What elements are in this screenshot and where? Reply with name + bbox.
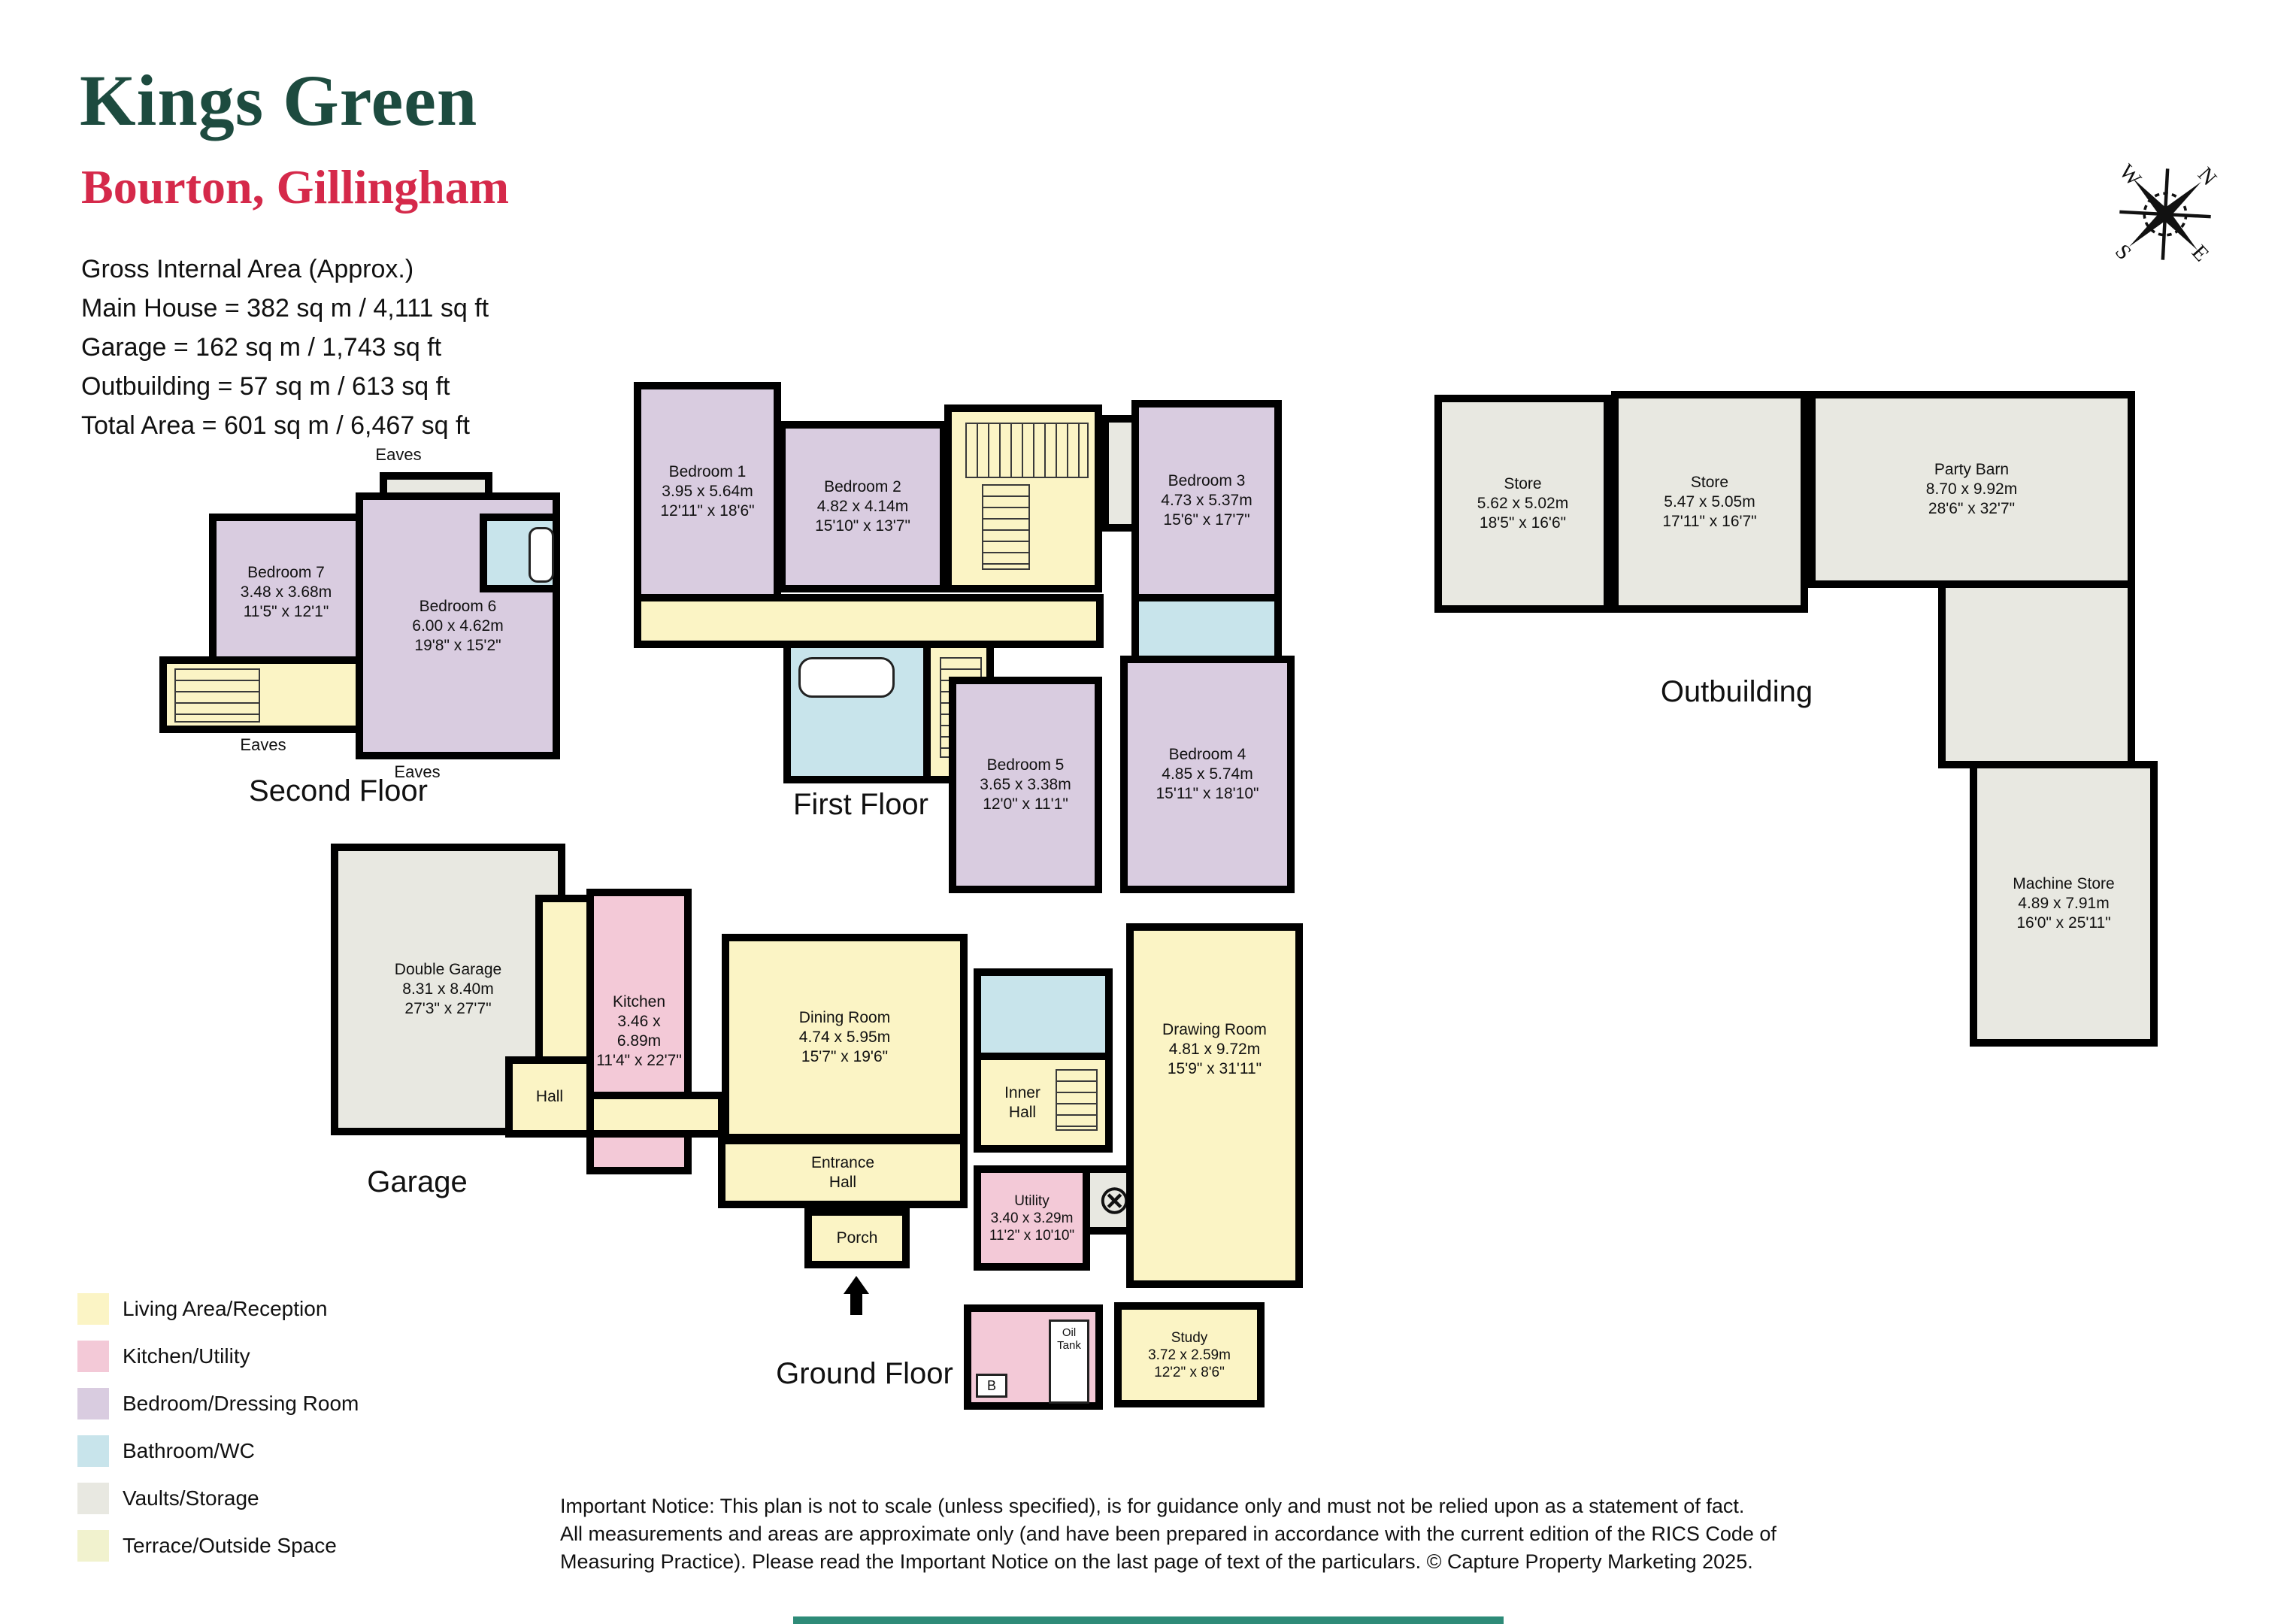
legend-swatch <box>77 1483 109 1514</box>
room-label: Inner Hall <box>995 1083 1050 1123</box>
garage-caption: Garage <box>342 1165 492 1199</box>
room-label: Bedroom 4 4.85 x 5.74m 15'11" x 18'10" <box>1156 745 1259 804</box>
bathtub-icon <box>529 527 554 583</box>
legend-label: Kitchen/Utility <box>123 1344 250 1368</box>
notice-line: All measurements and areas are approxima… <box>560 1520 1777 1548</box>
legend-item-bathroom: Bathroom/WC <box>77 1435 255 1467</box>
room-label: Dining Room 4.74 x 5.95m 15'7" x 19'6" <box>799 1008 890 1067</box>
second-floor-caption: Second Floor <box>248 774 429 808</box>
stairs <box>1056 1069 1098 1131</box>
legend-label: Terrace/Outside Space <box>123 1534 337 1558</box>
room-label: Store 5.62 x 5.02m 18'5" x 16'6" <box>1477 474 1568 533</box>
room-store-2: Store 5.47 x 5.05m 17'11" x 16'7" <box>1611 391 1808 613</box>
room-label: Utility 3.40 x 3.29m 11'2" x 10'10" <box>989 1192 1074 1244</box>
room-bedroom-5: Bedroom 5 3.65 x 3.38m 12'0" x 11'1" <box>949 677 1102 893</box>
page-subtitle: Bourton, Gillingham <box>81 159 509 215</box>
legend-label: Bedroom/Dressing Room <box>123 1392 359 1416</box>
floorplan-sheet: Kings Green Bourton, Gillingham Gross In… <box>0 0 2296 1624</box>
footer-brand-bar <box>793 1616 1504 1624</box>
room-label: Bedroom 2 4.82 x 4.14m 15'10" x 13'7" <box>815 477 910 536</box>
room-label: Hall <box>536 1087 563 1107</box>
ground-floor-caption: Ground Floor <box>759 1357 970 1391</box>
legend-swatch <box>77 1293 109 1325</box>
oil-tank-room: Oil Tank B <box>964 1304 1103 1410</box>
legend-swatch <box>77 1530 109 1562</box>
room-label: Kitchen 3.46 x 6.89m 11'4" x 22'7" <box>595 992 682 1071</box>
important-notice: Important Notice: This plan is not to sc… <box>560 1492 1777 1576</box>
second-floor-landing <box>159 656 363 733</box>
area-total: Total Area = 601 sq m / 6,467 sq ft <box>81 406 489 445</box>
room-utility: Utility 3.40 x 3.29m 11'2" x 10'10" <box>974 1165 1090 1271</box>
room-label: Double Garage 8.31 x 8.40m 27'3" x 27'7" <box>395 960 501 1019</box>
legend-item-bedroom: Bedroom/Dressing Room <box>77 1388 359 1419</box>
legend-item-living: Living Area/Reception <box>77 1293 327 1325</box>
room-label: Entrance Hall <box>801 1153 884 1192</box>
room-label: Bedroom 5 3.65 x 3.38m 12'0" x 11'1" <box>980 756 1071 814</box>
room-label: Bedroom 3 4.73 x 5.37m 15'6" x 17'7" <box>1161 471 1252 530</box>
room-wc-ground <box>974 968 1113 1060</box>
outbuilding-caption: Outbuilding <box>1631 675 1842 709</box>
boiler-marker: B <box>976 1374 1007 1398</box>
compass-n: N <box>2193 162 2222 190</box>
room-bathroom-first-left <box>783 641 931 783</box>
first-floor-stairwell <box>944 404 1102 592</box>
area-garage: Garage = 162 sq m / 1,743 sq ft <box>81 328 489 367</box>
room-label: Machine Store 4.89 x 7.91m 16'0" x 25'11… <box>2013 874 2114 933</box>
room-bathroom-second <box>480 514 560 592</box>
legend-label: Bathroom/WC <box>123 1439 255 1463</box>
stairs <box>965 423 1089 478</box>
legend-item-kitchen: Kitchen/Utility <box>77 1341 250 1372</box>
room-inner-hall: Inner Hall <box>974 1053 1113 1153</box>
room-label: Party Barn 8.70 x 9.92m 28'6" x 32'7" <box>1926 460 2017 519</box>
room-hall: Hall <box>505 1056 594 1138</box>
bathtub-icon <box>798 657 895 698</box>
room-porch: Porch <box>804 1208 910 1268</box>
room-bedroom-2: Bedroom 2 4.82 x 4.14m 15'10" x 13'7" <box>778 421 947 592</box>
area-outbuilding: Outbuilding = 57 sq m / 613 sq ft <box>81 367 489 406</box>
compass-rose-icon: N E S W <box>2101 150 2229 278</box>
room-store-1: Store 5.62 x 5.02m 18'5" x 16'6" <box>1434 395 1611 613</box>
legend-label: Living Area/Reception <box>123 1297 327 1321</box>
room-label: Bedroom 7 3.48 x 3.68m 11'5" x 12'1" <box>241 563 332 622</box>
legend-item-terrace: Terrace/Outside Space <box>77 1530 337 1562</box>
room-label: Bedroom 1 3.95 x 5.64m 12'11" x 18'6" <box>660 462 754 521</box>
first-floor-caption: First Floor <box>767 788 955 822</box>
room-bedroom-4: Bedroom 4 4.85 x 5.74m 15'11" x 18'10" <box>1120 656 1295 893</box>
legend-swatch <box>77 1341 109 1372</box>
room-hall-upper <box>535 895 594 1064</box>
notice-line: Important Notice: This plan is not to sc… <box>560 1492 1777 1520</box>
legend-item-storage: Vaults/Storage <box>77 1483 259 1514</box>
room-label: Study 3.72 x 2.59m 12'2" x 8'6" <box>1148 1329 1231 1381</box>
room-label: Store 5.47 x 5.05m 17'11" x 16'7" <box>1662 473 1756 532</box>
entrance-arrow-icon <box>844 1276 869 1294</box>
page-title: Kings Green <box>80 59 477 142</box>
ground-corridor <box>586 1092 725 1138</box>
legend-swatch <box>77 1435 109 1467</box>
room-label: Bedroom 6 6.00 x 4.62m 19'8" x 15'2" <box>412 597 503 656</box>
entrance-arrow-icon <box>850 1292 862 1315</box>
legend-swatch <box>77 1388 109 1419</box>
stairs <box>174 668 260 723</box>
room-label: Porch <box>837 1229 878 1248</box>
stairs <box>982 484 1030 570</box>
eaves-label-bottom-left: Eaves <box>222 735 304 755</box>
room-label: Drawing Room 4.81 x 9.72m 15'9" x 31'11" <box>1162 1020 1267 1192</box>
eaves-label-top: Eaves <box>353 445 444 465</box>
room-bathroom-first-right <box>1131 594 1282 663</box>
room-bedroom-1: Bedroom 1 3.95 x 5.64m 12'11" x 18'6" <box>634 382 781 601</box>
room-dining: Dining Room 4.74 x 5.95m 15'7" x 19'6" <box>722 934 968 1141</box>
room-study: Study 3.72 x 2.59m 12'2" x 8'6" <box>1114 1302 1265 1407</box>
area-heading: Gross Internal Area (Approx.) <box>81 250 489 289</box>
room-machine-store: Machine Store 4.89 x 7.91m 16'0" x 25'11… <box>1970 761 2158 1047</box>
area-summary: Gross Internal Area (Approx.) Main House… <box>81 250 489 445</box>
room-drawing: Drawing Room 4.81 x 9.72m 15'9" x 31'11" <box>1126 923 1303 1288</box>
area-main-house: Main House = 382 sq m / 4,111 sq ft <box>81 289 489 328</box>
room-bedroom-3: Bedroom 3 4.73 x 5.37m 15'6" x 17'7" <box>1131 400 1282 601</box>
oil-tank: Oil Tank <box>1049 1319 1089 1404</box>
room-party-barn: Party Barn 8.70 x 9.92m 28'6" x 32'7" <box>1808 391 2135 588</box>
notice-line: Measuring Practice). Please read the Imp… <box>560 1548 1777 1576</box>
compass-s: S <box>2110 240 2136 265</box>
room-bedroom-7: Bedroom 7 3.48 x 3.68m 11'5" x 12'1" <box>209 514 363 671</box>
legend-label: Vaults/Storage <box>123 1486 259 1510</box>
room-entrance-hall: Entrance Hall <box>718 1137 968 1208</box>
